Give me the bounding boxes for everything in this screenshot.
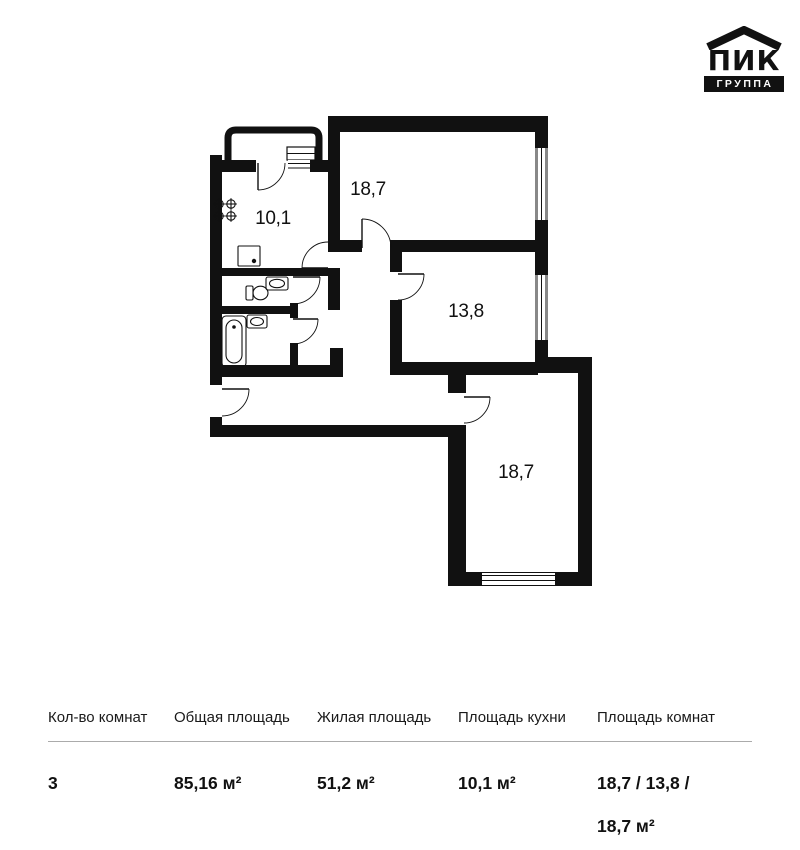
wc-sink-icon	[266, 277, 288, 290]
door-room-bottom	[464, 397, 490, 423]
bath-sink-icon	[247, 315, 267, 328]
door-balcony	[258, 163, 285, 190]
column-header-rooms-areas: Площадь комнат	[597, 706, 715, 730]
rooms-count-value: 3	[48, 762, 58, 805]
walls	[210, 116, 592, 586]
window-room-top	[536, 148, 548, 220]
window-room-middle	[536, 275, 548, 340]
column-header-rooms-count: Кол-во комнат	[48, 706, 147, 730]
floor-plan: 10,1 18,7 13,8 18,7	[200, 100, 600, 600]
logo-brand-text: ПИК	[704, 48, 784, 74]
door-kitchen	[302, 242, 328, 268]
kitchen-sink-icon	[238, 246, 260, 266]
pik-logo: ПИК ГРУППА	[704, 26, 784, 92]
door-bathroom	[293, 319, 318, 344]
room-area-label-kitchen: 10,1	[255, 208, 291, 229]
door-room-middle	[398, 274, 424, 300]
window-balcony-door	[288, 160, 310, 172]
balcony	[228, 130, 319, 163]
floor-plan-svg: 10,1 18,7 13,8 18,7	[200, 100, 600, 600]
kitchen-area-value: 10,1 м²	[458, 762, 516, 805]
door-room-top	[362, 219, 391, 248]
room-area-label-top: 18,7	[350, 179, 386, 200]
bathtub-icon	[222, 316, 246, 367]
column-header-kitchen-area: Площадь кухни	[458, 706, 566, 730]
living-area-value: 51,2 м²	[317, 762, 375, 805]
room-area-label-middle: 13,8	[448, 301, 484, 322]
logo-group-text: ГРУППА	[704, 76, 784, 92]
total-area-value: 85,16 м²	[174, 762, 241, 805]
toilet-icon	[246, 286, 268, 300]
rooms-areas-value: 18,7 / 13,8 / 18,7 м²	[597, 762, 712, 848]
column-header-total-area: Общая площадь	[174, 706, 290, 730]
room-area-label-bottom: 18,7	[498, 462, 534, 483]
door-entrance	[222, 389, 249, 416]
door-wc	[293, 277, 320, 304]
window-room-bottom	[482, 573, 555, 585]
table-divider	[48, 741, 752, 742]
column-header-living-area: Жилая площадь	[317, 706, 431, 730]
floorplan-page: { "logo": { "brand": "ПИК", "subtitle": …	[0, 0, 800, 850]
